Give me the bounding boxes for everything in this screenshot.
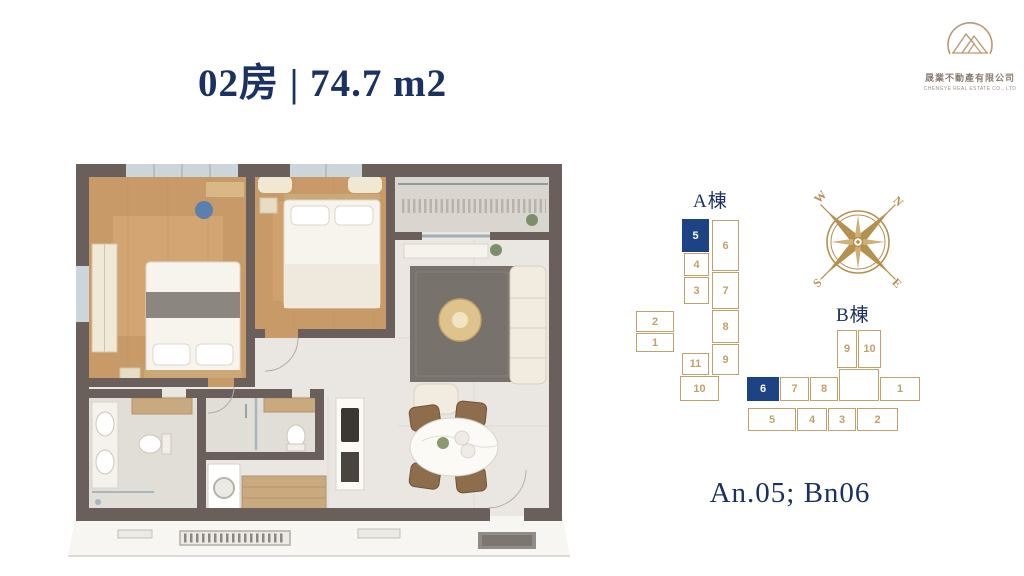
- balcony: [394, 174, 552, 232]
- unit-b-8: 8: [810, 377, 838, 401]
- building-a-label: A棟: [693, 186, 728, 213]
- building-b-label: B棟: [836, 300, 870, 327]
- desk-chair: [195, 201, 213, 219]
- toilet: [139, 435, 161, 453]
- floor-plan: [58, 146, 580, 570]
- threshold: [265, 329, 298, 338]
- compass-east-label: E: [889, 275, 905, 291]
- brick-counter: [242, 476, 326, 510]
- unit-b-2: 2: [857, 408, 898, 431]
- unit-a-2: 2: [636, 311, 674, 332]
- unit-b-4: 4: [797, 408, 827, 431]
- unit-code: An.05; Bn06: [648, 477, 932, 510]
- company-logo: 晟業不動產有限公司 CHENGYE REAL ESTATE CO., LTD: [920, 12, 1020, 92]
- plant: [490, 244, 502, 256]
- compass-west-label: W: [811, 188, 829, 206]
- balcony-plant: [526, 214, 538, 226]
- unit-a-10: 10: [680, 376, 719, 401]
- curtain: [348, 176, 382, 193]
- unit-b-3: 3: [828, 408, 856, 431]
- duvet: [284, 264, 380, 308]
- building-b-diagram: B棟 91067815432: [740, 300, 930, 436]
- bed-runner: [146, 292, 240, 318]
- cooktop: [341, 408, 359, 442]
- unit-b-9: 9: [837, 330, 857, 368]
- unit-a-7: 7: [712, 272, 739, 309]
- oven: [341, 452, 359, 482]
- unit-b-5: 5: [748, 408, 796, 431]
- building-a-diagram: A棟 5432111106789: [630, 186, 750, 408]
- slide: 02房 | 74.7 m2 晟業不動產有限公司 CHENGYE REAL EST…: [0, 0, 1024, 576]
- centerpiece: [437, 437, 449, 449]
- unit-a-3: 3: [684, 277, 709, 304]
- sofa: [510, 266, 546, 384]
- unit-a-4: 4: [684, 253, 709, 276]
- pillow: [153, 344, 190, 365]
- basin: [96, 412, 114, 436]
- wood-cabinet: [132, 398, 192, 414]
- unit-a-5: 5: [682, 219, 709, 252]
- unit-b-core: [839, 369, 879, 401]
- kitchen-dining-furniture: [336, 398, 498, 494]
- pillow: [196, 344, 233, 365]
- basin: [96, 450, 114, 474]
- mountain-logo-icon: [940, 12, 1000, 70]
- wood-cabinet: [264, 398, 316, 412]
- threshold: [208, 378, 234, 387]
- pillow: [291, 206, 329, 225]
- unit-a-9: 9: [712, 344, 739, 375]
- nightstand: [260, 198, 277, 213]
- unit-a-6: 6: [712, 220, 739, 271]
- page-title: 02房 | 74.7 m2: [198, 52, 447, 108]
- compass-rose-icon: W N S E: [801, 185, 915, 299]
- logo-company-name-zh: 晟業不動產有限公司: [920, 71, 1020, 84]
- unit-b-7: 7: [780, 377, 809, 401]
- pillow: [335, 206, 373, 225]
- tv-console: [404, 244, 488, 258]
- unit-a-1: 1: [636, 333, 674, 352]
- headboard: [144, 370, 242, 379]
- unit-b-1: 1: [880, 377, 920, 401]
- curtain: [258, 176, 292, 193]
- unit-a-11: 11: [682, 353, 709, 375]
- unit-a-8: 8: [712, 310, 739, 343]
- unit-b-6: 6: [747, 377, 779, 401]
- desk: [206, 182, 244, 197]
- unit-b-10: 10: [858, 330, 881, 368]
- logo-company-name-en: CHENGYE REAL ESTATE CO., LTD: [920, 86, 1020, 92]
